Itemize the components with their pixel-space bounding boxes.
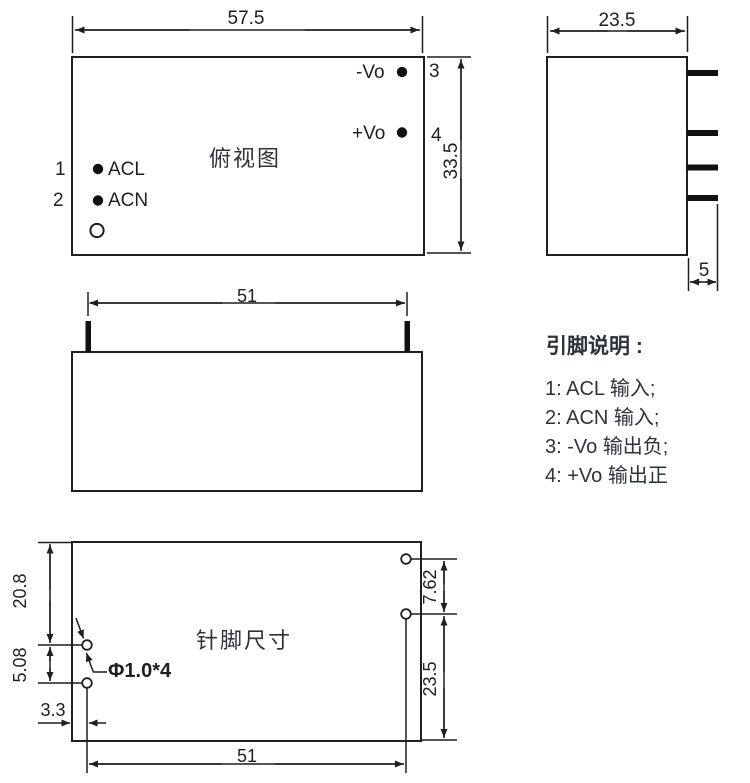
front-pin-right xyxy=(405,321,411,352)
pin-label-acn: ACN xyxy=(108,190,148,212)
dim-top-height-label: 33.5 xyxy=(441,138,463,184)
hole-pin-1 xyxy=(82,640,92,650)
dim-side-width-label: 23.5 xyxy=(593,10,641,32)
pin-dot-acn xyxy=(93,195,103,205)
front-view xyxy=(72,292,422,491)
dim-bottom-pin-to-bottom-label: 23.5 xyxy=(419,655,441,703)
dim-side-pin-length-label: 5 xyxy=(694,260,714,282)
legend-item-2: 2: ACN 输入; xyxy=(545,407,659,429)
dim-bottom-right-pitch-label: 7.62 xyxy=(419,563,441,611)
top-view xyxy=(72,16,471,255)
side-pin-4 xyxy=(687,195,718,201)
hole-pin-4 xyxy=(401,609,411,619)
front-view-outline xyxy=(72,352,422,491)
pin-number-3: 3 xyxy=(429,61,440,83)
index-hole-mark xyxy=(90,224,103,237)
side-pin-2 xyxy=(687,130,718,136)
legend-item-4: 4: +Vo 输出正 xyxy=(545,465,668,487)
pin-number-1: 1 xyxy=(55,159,66,181)
bottom-view xyxy=(38,542,457,773)
pin-label-neg-vo: -Vo xyxy=(356,62,385,84)
legend-item-1: 1: ACL 输入; xyxy=(545,378,655,400)
dim-bottom-top-to-pin-label: 20.8 xyxy=(9,567,31,615)
bottom-view-title: 针脚尺寸 xyxy=(196,630,292,652)
dim-bottom-left-offset-label: 3.3 xyxy=(37,699,69,721)
pin-dot-acl xyxy=(93,164,103,174)
legend-heading: 引脚说明 : xyxy=(546,336,643,358)
side-pin-3 xyxy=(687,165,718,171)
side-pin-1 xyxy=(687,70,718,76)
hole-pin-2 xyxy=(82,678,92,688)
dim-front-pin-span-label: 51 xyxy=(230,285,264,307)
dim-bottom-left-pitch-label: 5.08 xyxy=(9,641,31,689)
top-view-title: 俯视图 xyxy=(209,148,281,170)
hole-diameter-callout: Φ1.0*4 xyxy=(108,660,171,682)
drawing-sheet: 57.5 33.5 -Vo 3 +Vo 4 俯视图 1 ACL 2 ACN 23… xyxy=(0,0,750,783)
side-view xyxy=(547,16,718,291)
pin-label-acl: ACL xyxy=(108,159,145,181)
side-view-outline xyxy=(547,57,687,255)
front-pin-left xyxy=(86,321,92,352)
hole-pin-3 xyxy=(401,554,411,564)
pin-number-2: 2 xyxy=(53,190,64,212)
legend-item-3: 3: -Vo 输出负; xyxy=(545,436,668,458)
pin-label-pos-vo: +Vo xyxy=(352,123,385,145)
pin-dot-neg-vo xyxy=(397,67,407,77)
dim-bottom-pin-span-label: 51 xyxy=(230,745,264,767)
pin-dot-pos-vo xyxy=(397,127,407,137)
pin-number-4: 4 xyxy=(431,125,442,147)
dim-top-width-label: 57.5 xyxy=(222,8,270,30)
